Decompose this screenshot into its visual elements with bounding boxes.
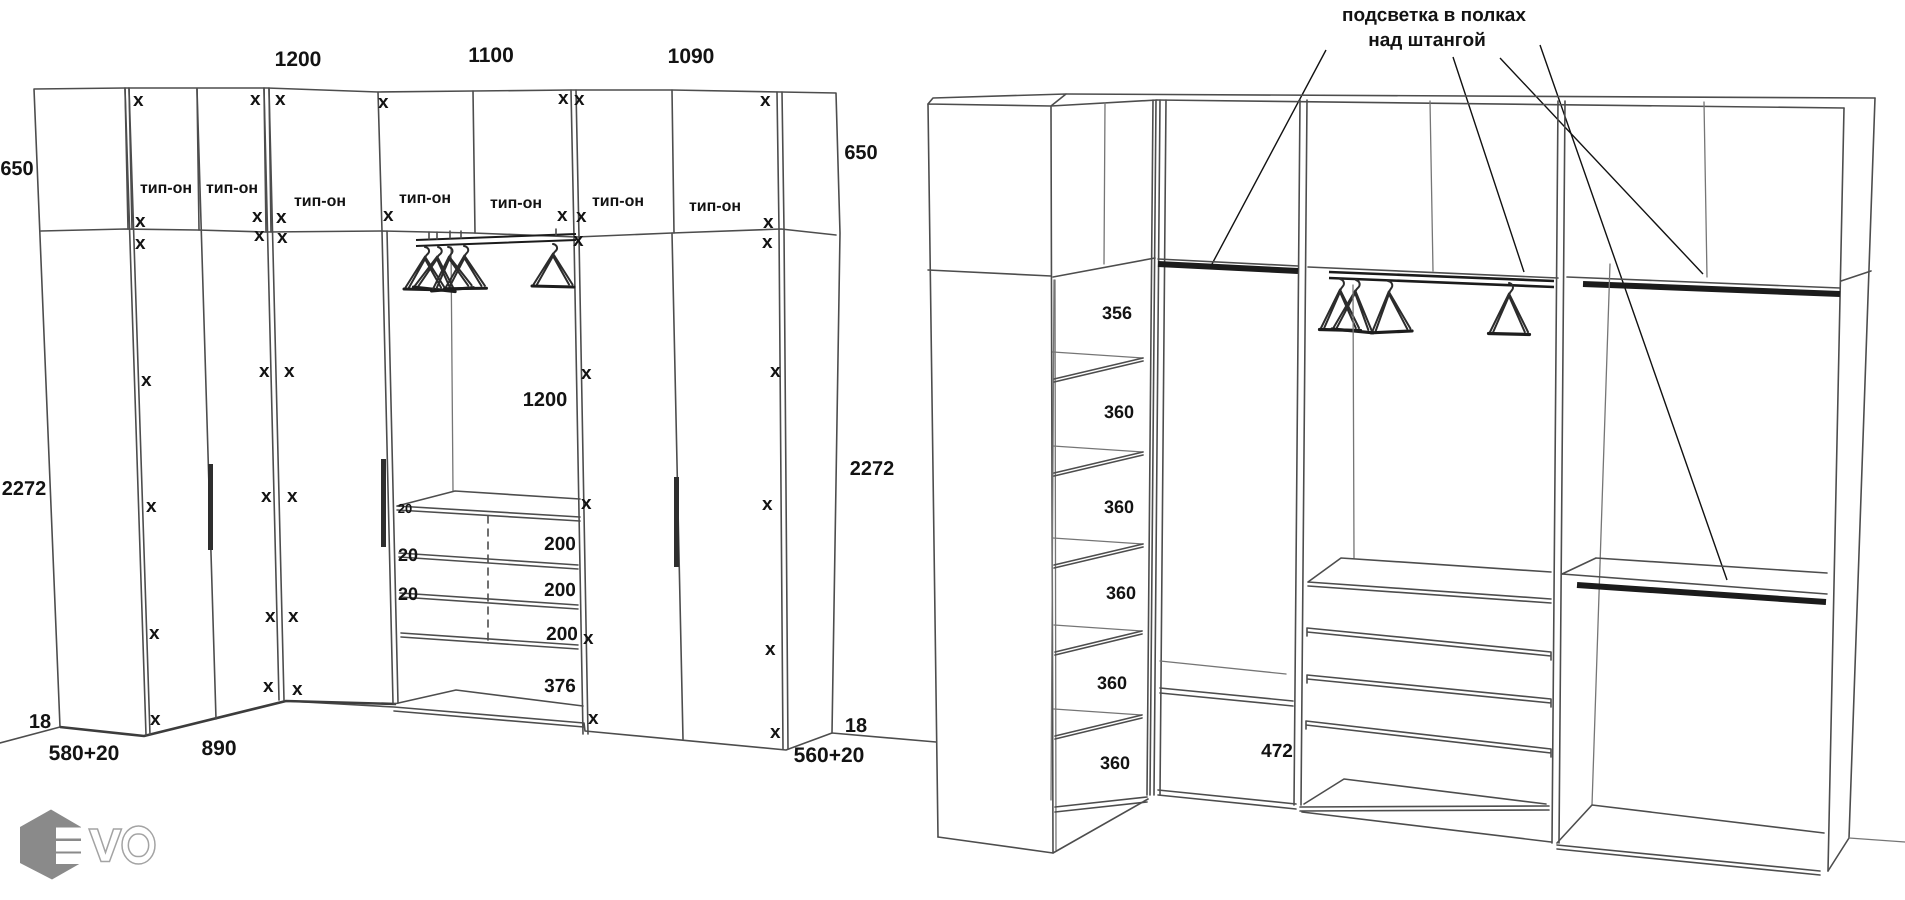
svg-text:x: x — [558, 88, 569, 109]
svg-text:200: 200 — [546, 624, 578, 645]
svg-text:x: x — [583, 628, 594, 649]
svg-text:1090: 1090 — [668, 45, 715, 68]
svg-text:x: x — [250, 89, 261, 110]
svg-text:тип-он: тип-он — [140, 180, 192, 197]
svg-text:x: x — [284, 361, 295, 382]
svg-text:x: x — [146, 496, 157, 517]
svg-text:1200: 1200 — [523, 389, 568, 411]
svg-text:x: x — [383, 205, 394, 226]
svg-text:x: x — [762, 494, 773, 515]
svg-text:x: x — [765, 639, 776, 660]
svg-text:тип-он: тип-он — [592, 193, 644, 210]
svg-text:x: x — [760, 90, 771, 111]
svg-text:тип-он: тип-он — [399, 190, 451, 207]
svg-text:200: 200 — [544, 580, 576, 601]
svg-text:x: x — [588, 708, 599, 729]
svg-text:x: x — [150, 709, 161, 730]
svg-text:x: x — [149, 623, 160, 644]
svg-text:x: x — [141, 370, 152, 391]
svg-text:x: x — [133, 90, 144, 111]
svg-text:x: x — [292, 679, 303, 700]
svg-text:360: 360 — [1104, 402, 1134, 422]
svg-text:20: 20 — [398, 545, 418, 565]
svg-text:x: x — [287, 486, 298, 507]
svg-text:x: x — [265, 606, 276, 627]
svg-text:x: x — [135, 211, 146, 232]
svg-text:360: 360 — [1106, 583, 1136, 603]
svg-text:360: 360 — [1100, 753, 1130, 773]
svg-text:2272: 2272 — [2, 478, 47, 500]
svg-text:890: 890 — [201, 737, 236, 760]
svg-text:подсветка в полках: подсветка в полках — [1342, 5, 1526, 26]
svg-text:650: 650 — [0, 158, 33, 180]
svg-text:2272: 2272 — [850, 458, 895, 480]
svg-text:x: x — [770, 361, 781, 382]
svg-text:x: x — [581, 363, 592, 384]
svg-text:x: x — [573, 230, 584, 251]
svg-text:x: x — [252, 206, 263, 227]
svg-text:x: x — [276, 207, 287, 228]
svg-text:650: 650 — [844, 142, 877, 164]
svg-text:x: x — [770, 722, 781, 743]
svg-text:18: 18 — [845, 715, 867, 737]
svg-text:над штангой: над штангой — [1368, 30, 1486, 51]
svg-text:x: x — [135, 233, 146, 254]
svg-text:20: 20 — [398, 501, 412, 516]
svg-text:x: x — [259, 361, 270, 382]
svg-text:x: x — [762, 232, 773, 253]
svg-text:x: x — [763, 212, 774, 233]
svg-text:200: 200 — [544, 534, 576, 555]
svg-text:x: x — [378, 92, 389, 113]
svg-text:x: x — [576, 206, 587, 227]
svg-text:20: 20 — [398, 584, 418, 604]
svg-text:x: x — [277, 227, 288, 248]
svg-text:x: x — [275, 89, 286, 110]
svg-text:1100: 1100 — [468, 44, 514, 67]
svg-text:x: x — [263, 676, 274, 697]
svg-text:376: 376 — [544, 676, 576, 697]
svg-text:x: x — [557, 205, 568, 226]
svg-text:тип-он: тип-он — [294, 193, 346, 210]
svg-text:x: x — [574, 89, 585, 110]
svg-text:x: x — [288, 606, 299, 627]
svg-text:тип-он: тип-он — [490, 195, 542, 212]
svg-text:560+20: 560+20 — [794, 744, 865, 767]
svg-text:1200: 1200 — [275, 48, 322, 71]
svg-text:360: 360 — [1097, 673, 1127, 693]
svg-text:472: 472 — [1261, 741, 1293, 762]
svg-text:x: x — [254, 225, 265, 246]
svg-text:356: 356 — [1102, 303, 1132, 323]
svg-text:тип-он: тип-он — [206, 180, 258, 197]
svg-text:тип-он: тип-он — [689, 198, 741, 215]
svg-text:x: x — [261, 486, 272, 507]
svg-text:x: x — [581, 493, 592, 514]
svg-text:360: 360 — [1104, 497, 1134, 517]
svg-text:580+20: 580+20 — [49, 742, 120, 765]
svg-text:18: 18 — [29, 711, 51, 733]
